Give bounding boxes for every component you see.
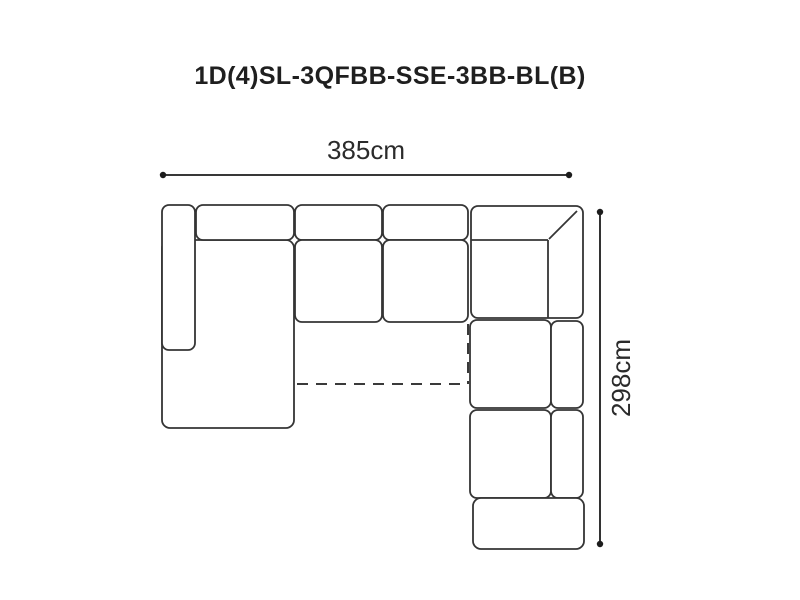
height-dimension-top-dot (597, 209, 603, 215)
width-dimension-label: 385cm (327, 135, 405, 165)
width-dimension-left-dot (160, 172, 166, 178)
height-dimension-label: 298cm (606, 339, 636, 417)
left-armrest (162, 205, 195, 350)
seat-2 (295, 240, 382, 322)
height-dimension: 298cm (597, 209, 636, 547)
diagram-canvas: 1D(4)SL-3QFBB-SSE-3BB-BL(B) 385cm 298cm (0, 0, 800, 600)
right-backrest-1 (551, 321, 583, 408)
seat-3 (383, 240, 468, 322)
page-title: 1D(4)SL-3QFBB-SSE-3BB-BL(B) (194, 62, 585, 90)
backrest-3 (383, 205, 468, 240)
width-dimension: 385cm (160, 135, 572, 178)
height-dimension-bottom-dot (597, 541, 603, 547)
right-seat-2 (470, 410, 551, 498)
bottom-armrest (473, 498, 584, 549)
width-dimension-right-dot (566, 172, 572, 178)
sofa-dimension-diagram: 1D(4)SL-3QFBB-SSE-3BB-BL(B) 385cm 298cm (0, 0, 800, 600)
backrest-1 (196, 205, 294, 240)
backrest-2 (295, 205, 382, 240)
right-seat-1 (470, 320, 551, 408)
sofa-outline (162, 205, 584, 549)
corner-module (471, 206, 583, 318)
right-backrest-2 (551, 410, 583, 498)
bed-extension-dashed-outline (297, 324, 468, 384)
